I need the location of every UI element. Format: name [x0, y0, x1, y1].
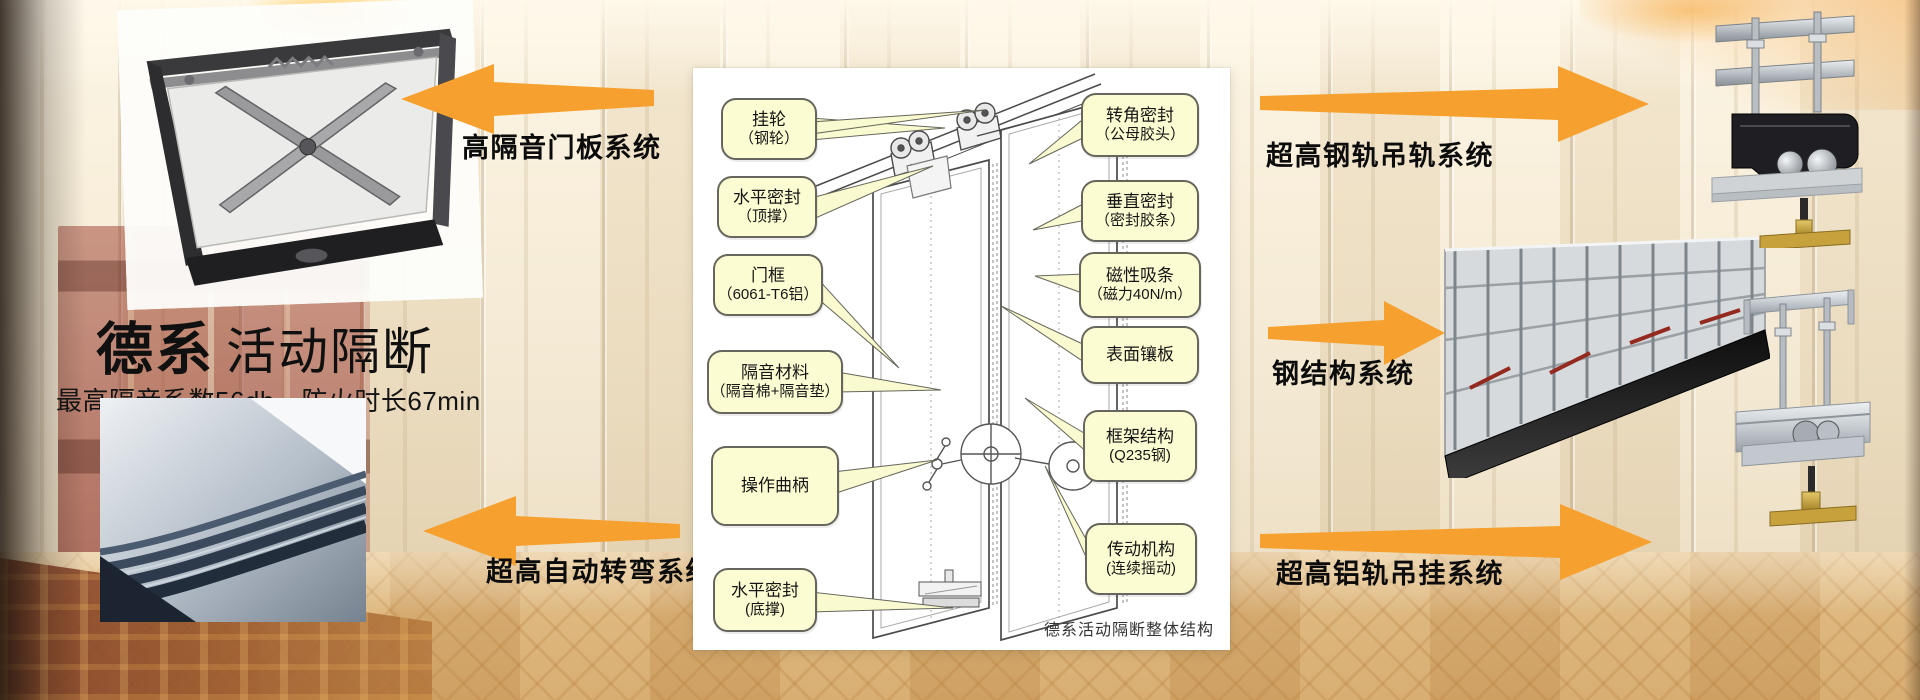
callout-line2: （隔音棉+隔音垫）: [711, 383, 840, 402]
callout-vertical-seal: 垂直密封 （密封胶条）: [1081, 180, 1199, 242]
callout-transmission-mechanism: 传动机构 (连续摇动): [1085, 523, 1197, 595]
callout-line1: 水平密封: [731, 580, 799, 601]
callout-surface-panel: 表面镶板: [1081, 326, 1199, 384]
callout-line1: 传动机构: [1107, 539, 1175, 560]
photo-door-top-mechanism: [117, 0, 483, 310]
right-dark-edge: [1904, 0, 1920, 700]
callout-line1: 垂直密封: [1106, 191, 1174, 212]
callout-line2: (连续摇动): [1106, 560, 1176, 579]
page-title: 德系 活动隔断: [96, 304, 434, 386]
callout-line2: (底撑): [745, 601, 785, 620]
callout-horizontal-seal-top: 水平密封 （顶撑）: [717, 176, 817, 238]
callout-line2: （公母胶头）: [1095, 126, 1185, 145]
brand-name: 德系: [96, 304, 214, 386]
callout-sound-insulation: 隔音材料 （隔音棉+隔音垫）: [707, 350, 843, 414]
callout-line1: 操作曲柄: [741, 475, 809, 496]
callout-operating-crank: 操作曲柄: [711, 446, 839, 526]
photo-aluminum-rail-hanger: [1722, 284, 1884, 530]
callout-magnetic-strip: 磁性吸条 （磁力40N/m）: [1079, 252, 1201, 318]
callout-line1: 门框: [751, 265, 785, 286]
callout-line1: 框架结构: [1106, 426, 1174, 447]
callout-line1: 隔音材料: [741, 362, 809, 383]
product-name: 活动隔断: [226, 312, 434, 384]
callout-line2: （顶撑）: [737, 208, 797, 227]
system-label-steel-structure: 钢结构系统: [1272, 352, 1415, 391]
callout-line2: （密封胶条）: [1095, 212, 1185, 231]
callout-line2: （钢轮）: [739, 130, 799, 149]
callout-line2: （磁力40N/m）: [1088, 286, 1192, 305]
system-label-steel-rail: 超高钢轨吊轨系统: [1266, 134, 1494, 173]
photo-curved-track: [100, 398, 366, 622]
callout-line1: 磁性吸条: [1106, 265, 1174, 286]
callout-frame-structure: 框架结构 (Q235钢): [1083, 410, 1197, 482]
callout-line2: （6061-T6铝）: [718, 286, 819, 305]
photo-steel-rail-hanger: [1702, 6, 1872, 248]
system-label-door-panel: 高隔音门板系统: [462, 126, 662, 165]
diagram-caption: 德系活动隔断整体结构: [1044, 616, 1214, 640]
system-label-auto-turning: 超高自动转弯系统: [486, 550, 714, 589]
callout-line1: 水平密封: [733, 187, 801, 208]
callout-horizontal-seal-bottom: 水平密封 (底撑): [713, 568, 817, 632]
callout-door-frame: 门框 （6061-T6铝）: [713, 254, 823, 316]
system-label-aluminum-rail: 超高铝轨吊挂系统: [1276, 552, 1504, 591]
partition-structure-diagram: 挂轮 （钢轮） 水平密封 （顶撑） 门框 （6061-T6铝） 隔音材料 （隔音…: [693, 68, 1230, 650]
callout-line1: 挂轮: [752, 109, 786, 130]
callout-hanging-wheel: 挂轮 （钢轮）: [721, 98, 817, 160]
callout-line2: (Q235钢): [1109, 447, 1171, 466]
callout-line1: 表面镶板: [1106, 344, 1174, 365]
left-dark-edge: [0, 0, 86, 700]
marketing-slide: 德系 活动隔断 最高隔音系数56db，防火时长67min 高隔音门板系统 超高自…: [0, 0, 1920, 700]
callout-corner-seal: 转角密封 （公母胶头）: [1081, 93, 1199, 157]
callout-line1: 转角密封: [1106, 105, 1174, 126]
